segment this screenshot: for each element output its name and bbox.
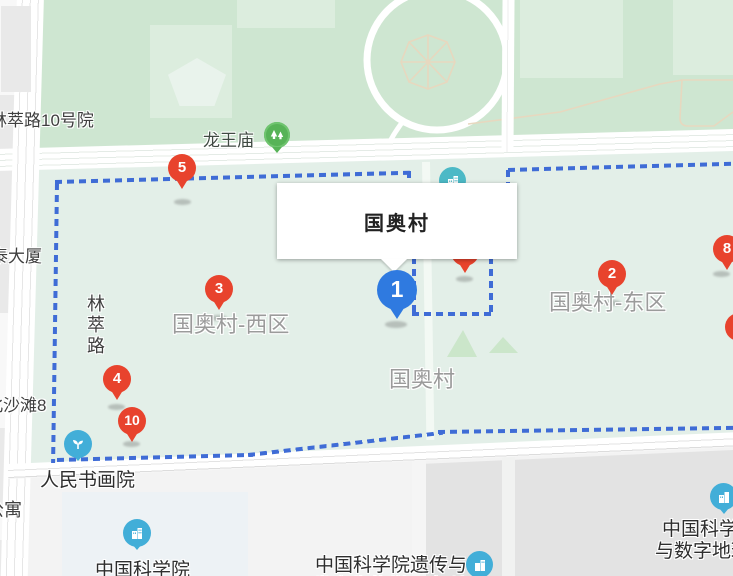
pin-shadow [385, 321, 407, 328]
infobox-title: 国奥村 [364, 207, 430, 236]
building-icon [717, 490, 731, 504]
poi-label-cas: 中国科学院 [95, 555, 190, 576]
poi-label-longwangmiao: 龙王庙 [203, 126, 254, 151]
renmin-academy-poi[interactable] [64, 430, 92, 458]
map-canvas[interactable]: 林萃路10号院 泰大厦 林萃路 北沙滩8 公寓 国奥村-西区 国奥村-东区 国奥… [0, 0, 733, 576]
street-label-beishatan8: 北沙滩8 [0, 391, 46, 416]
boundary-tick-right [506, 170, 510, 184]
street-label-lincuilu: 林萃路 [82, 294, 108, 357]
building-block [1, 6, 31, 92]
street-label-lincuilu10: 林萃路10号院 [0, 106, 94, 131]
map-pin-5[interactable]: 5 [168, 154, 196, 182]
map-pin-3[interactable]: 3 [205, 275, 233, 303]
area-label-center: 国奥村 [389, 362, 455, 394]
boundary-inner-right [489, 257, 493, 315]
street-label-gongyu: 公寓 [0, 496, 22, 522]
map-pin-2[interactable]: 2 [598, 260, 626, 288]
pin-shadow [713, 271, 730, 277]
poi-label-genetics-2: 发育生物学研究所 [313, 571, 465, 576]
poi-label-digital-2: 与数字地球 [655, 536, 733, 563]
area-label-west: 国奥村-西区 [172, 307, 289, 339]
street-label-taidasha: 泰大厦 [0, 242, 42, 267]
map-pin-edge[interactable] [725, 313, 733, 341]
pin-shadow [456, 276, 473, 282]
genetics-poi[interactable] [466, 551, 493, 576]
cas-poi[interactable] [123, 519, 151, 547]
poi-label-renmin-academy: 人民书画院 [40, 465, 135, 492]
map-pin-10[interactable]: 10 [118, 407, 146, 435]
digital-earth-poi[interactable] [710, 483, 733, 510]
map-pin-8[interactable]: 8 [713, 235, 733, 263]
boundary-inner-bottom [412, 312, 496, 316]
temple-poi[interactable] [264, 122, 290, 148]
map-pin-1-selected[interactable]: 1 [377, 270, 417, 310]
result-infobox[interactable]: 国奥村 [277, 183, 517, 259]
sprout-icon [71, 437, 85, 451]
map-pin-4[interactable]: 4 [103, 365, 131, 393]
building-icon [473, 558, 487, 572]
building-icon [130, 526, 144, 540]
park-road-vertical [501, 0, 514, 152]
tree-icon [269, 129, 285, 141]
pin-shadow [174, 199, 191, 205]
